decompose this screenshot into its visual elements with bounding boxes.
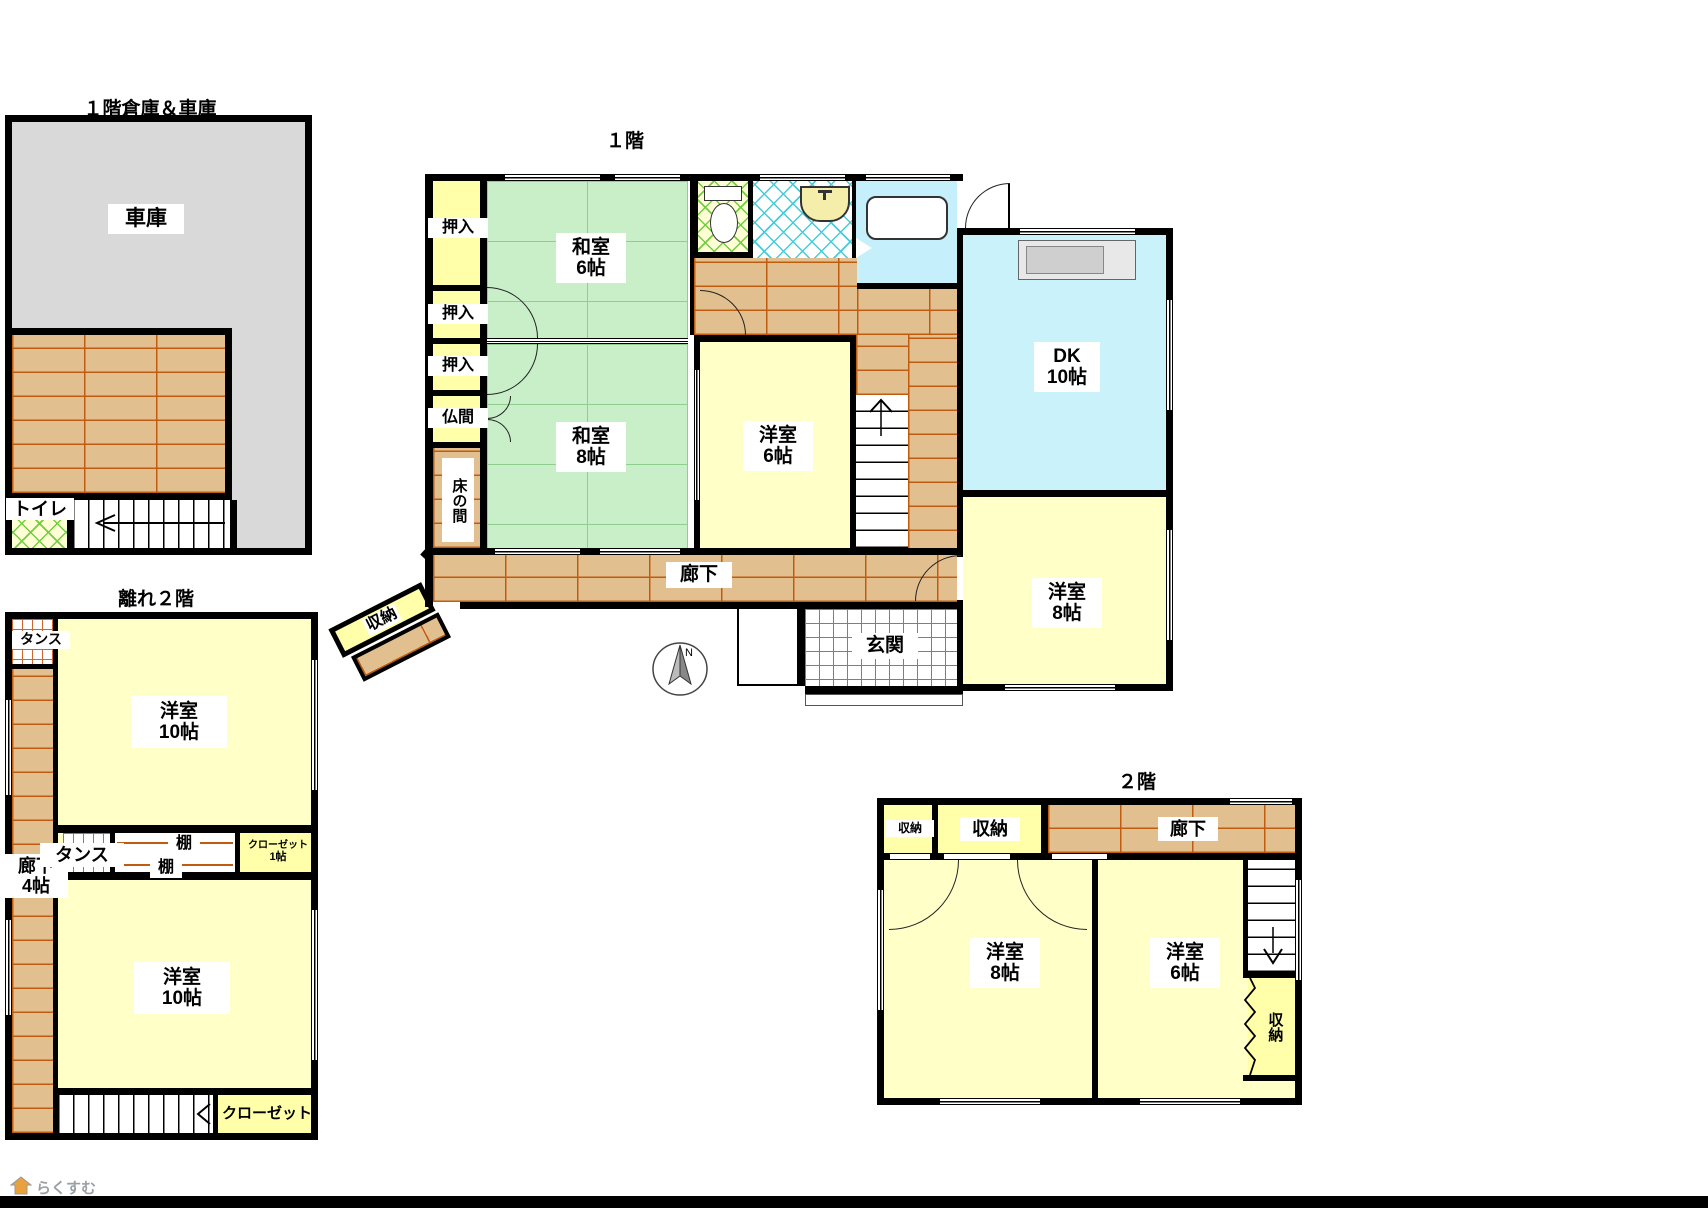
window xyxy=(495,548,580,555)
window xyxy=(1005,684,1115,691)
bottom-bar xyxy=(0,1196,1708,1208)
f2-yoshitsu-8-label: 洋室8帖 xyxy=(970,938,1040,988)
wall xyxy=(58,1088,311,1095)
annex-corridor xyxy=(12,669,58,1133)
window xyxy=(1230,798,1292,805)
window xyxy=(311,660,318,790)
wall xyxy=(1092,860,1098,1098)
garage-toilet-room xyxy=(12,520,67,548)
window xyxy=(615,174,680,181)
wall xyxy=(225,328,232,500)
dk-label: DK10帖 xyxy=(1034,342,1100,392)
door-gap xyxy=(1052,854,1107,859)
door-arc xyxy=(965,183,1010,228)
room-garage-label: 車庫 xyxy=(108,204,184,234)
floor-plan: １階倉庫＆車庫 車庫 トイレ 収納 １階 和室6帖 和室8帖 押入 押入 押入 … xyxy=(0,0,1708,1208)
annex-tansu-top-label: タンス xyxy=(12,631,70,649)
toilet-tank-icon xyxy=(704,186,742,201)
f2-yoshitsu-6-label: 洋室6帖 xyxy=(1150,938,1220,988)
window xyxy=(877,890,884,1010)
corridor-stair-landing xyxy=(856,335,908,395)
washitsu-6-label: 和室6帖 xyxy=(556,233,626,283)
window xyxy=(694,370,700,500)
garage-wood-floor xyxy=(12,335,225,493)
window xyxy=(600,548,680,555)
garage-stairs-direction-arrow xyxy=(85,512,235,534)
annex-room-a-label: 洋室10帖 xyxy=(131,696,227,748)
tokonoma-label: 床の間 xyxy=(442,458,474,542)
window xyxy=(940,1098,1040,1105)
f2-stairs-down-arrow xyxy=(1260,925,1286,969)
window xyxy=(866,174,950,181)
window xyxy=(5,700,12,795)
window xyxy=(311,910,318,1060)
window xyxy=(5,920,12,1015)
corridor-side xyxy=(908,335,957,555)
bath-door-icon xyxy=(856,238,872,258)
annex2f-title: 離れ２階 xyxy=(76,584,236,611)
window xyxy=(1020,228,1135,235)
wall xyxy=(963,490,1166,497)
kitchen-sink-icon xyxy=(1026,246,1104,274)
washitsu-8-label: 和室8帖 xyxy=(556,422,626,472)
f2-corridor-label: 廊下 xyxy=(1158,817,1218,841)
window xyxy=(1166,530,1173,640)
bathtub-icon xyxy=(866,196,948,240)
wall xyxy=(1243,1075,1295,1081)
yoshitsu-8-f1-label: 洋室8帖 xyxy=(1032,578,1102,628)
wall xyxy=(797,609,805,686)
annex-stairs-direction-arrow xyxy=(192,1100,218,1128)
corridor-label: 廊下 xyxy=(666,562,732,588)
window xyxy=(1295,880,1302,980)
door-gap xyxy=(944,854,1010,859)
window xyxy=(505,174,600,181)
brand-text: らくすむ xyxy=(36,1177,96,1198)
annex-tansu-mid-label: タンス xyxy=(40,843,124,867)
window xyxy=(1140,1098,1240,1105)
f2-storage-small-label: 収納 xyxy=(886,820,934,837)
door-gap xyxy=(890,854,930,859)
wall xyxy=(58,825,311,833)
f2-storage-right-label: 収納 xyxy=(1258,998,1290,1056)
toilet-bowl-icon xyxy=(710,203,738,243)
f2-title: ２階 xyxy=(1096,767,1178,794)
yoshitsu-6-f1-label: 洋室6帖 xyxy=(743,421,813,471)
zigzag-edge-icon xyxy=(1242,978,1258,1075)
wall xyxy=(850,335,856,395)
faucet-icon xyxy=(823,190,826,200)
oshiire-1-label: 押入 xyxy=(428,218,488,238)
garage-building-title: １階倉庫＆車庫 xyxy=(60,94,240,121)
window xyxy=(760,174,845,181)
annex-room-b-label: 洋室10帖 xyxy=(134,962,230,1014)
wall xyxy=(12,328,232,335)
storage-diagonal-label: 収納 xyxy=(362,604,402,636)
annex-closet2-label: クローゼット xyxy=(220,1104,314,1124)
oshiire-3-label: 押入 xyxy=(428,356,488,376)
annex-shelf1-label: 棚 xyxy=(168,834,200,854)
wall xyxy=(805,686,963,694)
f1-title: １階 xyxy=(585,126,665,153)
f1-stairs-up-arrow xyxy=(866,396,898,486)
wall xyxy=(460,602,963,609)
wall xyxy=(694,335,856,342)
wall xyxy=(1041,805,1048,853)
wall xyxy=(425,174,433,607)
annex-stairs xyxy=(58,1095,213,1133)
garage-toilet-label: トイレ xyxy=(6,498,74,520)
f2-storage-large-label: 収納 xyxy=(960,817,1020,841)
annex-closet1-label: クローゼット1帖 xyxy=(242,836,314,868)
wall xyxy=(957,235,963,691)
genkan-label: 玄関 xyxy=(852,633,918,659)
corridor-upper xyxy=(857,289,957,335)
wall xyxy=(58,872,311,880)
oshiire-2-label: 押入 xyxy=(428,304,488,324)
butsuma-label: 仏間 xyxy=(428,408,488,428)
compass-icon: N xyxy=(650,638,712,700)
compass-north-label: N xyxy=(685,647,693,659)
window xyxy=(1166,300,1173,410)
annex-shelf2-label: 棚 xyxy=(150,858,182,878)
entrance-porch xyxy=(737,609,797,686)
brand-house-icon xyxy=(10,1176,32,1196)
entrance-step xyxy=(805,694,963,706)
